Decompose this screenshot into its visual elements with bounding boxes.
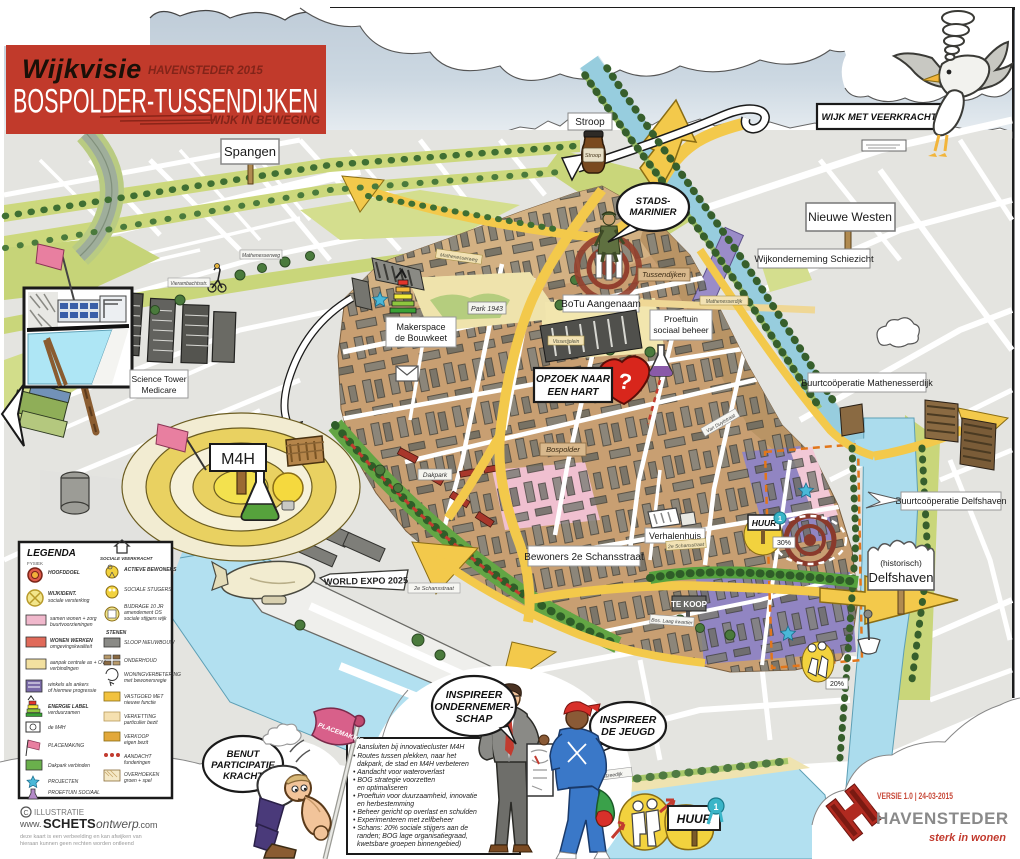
svg-text:Buurtcoöperatie Mathenesserdij: Buurtcoöperatie Mathenesserdijk — [801, 378, 933, 388]
svg-text:20%: 20% — [830, 681, 844, 688]
svg-text:www.: www. — [19, 819, 42, 829]
svg-text:met bewonersregie: met bewonersregie — [124, 678, 167, 684]
svg-text:en herbestemming: en herbestemming — [357, 801, 414, 808]
svg-text:ACTIEVE BEWONERS: ACTIEVE BEWONERS — [123, 567, 177, 573]
svg-text:Buurtcoöperatie Delfshaven: Buurtcoöperatie Delfshaven — [895, 496, 1006, 506]
svg-text:nieuwe functie: nieuwe functie — [124, 700, 156, 706]
svg-text:HOOFDDOEL: HOOFDDOEL — [48, 570, 80, 576]
svg-text:SLOOP NIEUWBOUW: SLOOP NIEUWBOUW — [124, 640, 176, 646]
svg-text:groen + spel: groen + spel — [124, 778, 153, 784]
svg-text:WIJK IN BEWEGING: WIJK IN BEWEGING — [209, 115, 320, 127]
svg-text:sociaal beheer: sociaal beheer — [653, 325, 708, 335]
svg-text:Wijkvisie: Wijkvisie — [22, 54, 142, 84]
svg-text:30%: 30% — [777, 540, 791, 547]
svg-text:• Aandacht voor wateroverlast: • Aandacht voor wateroverlast — [353, 769, 445, 776]
svg-text:C: C — [23, 810, 28, 817]
svg-text:PROJECTEN: PROJECTEN — [48, 779, 79, 785]
svg-text:Nieuwe Westen: Nieuwe Westen — [808, 210, 892, 224]
svg-text:sterk in wonen: sterk in wonen — [929, 832, 1006, 844]
svg-text:Spangen: Spangen — [224, 144, 276, 159]
svg-text:VERSIE 1.0 | 24-03-2015: VERSIE 1.0 | 24-03-2015 — [877, 791, 953, 801]
svg-text:Science Tower: Science Tower — [131, 374, 186, 384]
svg-text:DE JEUGD: DE JEUGD — [601, 726, 655, 738]
svg-text:en optimaliseren: en optimaliseren — [357, 785, 408, 792]
svg-text:Wijkonderneming Schiezicht: Wijkonderneming Schiezicht — [754, 254, 874, 265]
svg-text:sociale stijgers wijk: sociale stijgers wijk — [124, 616, 167, 622]
svg-text:Dakpark verbinden: Dakpark verbinden — [48, 763, 90, 769]
svg-text:2e Schansstraat: 2e Schansstraat — [413, 586, 454, 592]
svg-text:funderingen: funderingen — [124, 760, 151, 766]
svg-text:WIJKIDENT.: WIJKIDENT. — [48, 591, 77, 597]
svg-text:verbindingen: verbindingen — [50, 666, 79, 672]
svg-text:Visserijplein: Visserijplein — [553, 339, 580, 345]
svg-text:PLACEMAKING: PLACEMAKING — [48, 743, 84, 749]
svg-text:eigen bezit: eigen bezit — [124, 740, 149, 746]
svg-text:INSPIREER: INSPIREER — [600, 714, 657, 726]
svg-text:STENEN: STENEN — [106, 630, 127, 636]
svg-text:HAVENSTEDER 2015: HAVENSTEDER 2015 — [148, 65, 263, 77]
svg-text:Bewoners 2e Schansstraat: Bewoners 2e Schansstraat — [524, 552, 644, 563]
svg-text:buurtvoorzieningen: buurtvoorzieningen — [50, 622, 93, 628]
svg-text:.com: .com — [138, 820, 158, 830]
svg-text:sociale versterking: sociale versterking — [48, 598, 90, 604]
svg-text:PARTICIPATIE: PARTICIPATIE — [211, 760, 275, 771]
svg-text:SCHETS: SCHETS — [43, 816, 96, 831]
svg-text:• Experimenteren met zelfbehee: • Experimenteren met zelfbeheer — [353, 817, 454, 824]
svg-text:omgevingskwaliteit: omgevingskwaliteit — [50, 644, 93, 650]
svg-text:Stroop: Stroop — [575, 117, 605, 128]
svg-text:SOCIALE STIJGERS: SOCIALE STIJGERS — [124, 587, 172, 593]
svg-text:INSPIREER: INSPIREER — [446, 689, 503, 701]
svg-text:SOCIALE VEERKRACHT: SOCIALE VEERKRACHT — [100, 556, 154, 561]
svg-text:• Schans: 20% sociale stijgers: • Schans: 20% sociale stijgers aan de — [353, 825, 468, 832]
svg-text:WIJK MET VEERKRACHT: WIJK MET VEERKRACHT — [821, 112, 937, 123]
svg-text:de Bouwkeet: de Bouwkeet — [395, 333, 448, 343]
svg-text:kwetsbare groepen binnengebied: kwetsbare groepen binnengebied) — [357, 841, 461, 848]
svg-text:WORLD EXPO 2025: WORLD EXPO 2025 — [324, 575, 408, 586]
svg-text:ONDERHOUD: ONDERHOUD — [124, 658, 157, 664]
svg-text:BENUT: BENUT — [227, 749, 261, 760]
svg-text:ontwerp: ontwerp — [96, 817, 139, 831]
svg-text:• Aansluiten bij innovatieclus: • Aansluiten bij innovatiecluster M4H — [353, 744, 464, 751]
svg-text:verduurzamen: verduurzamen — [48, 710, 80, 716]
svg-text:dakpark, de stad en M4H verbe: dakpark, de stad en M4H verbeteren — [357, 761, 469, 768]
svg-text:BoTu Aangenaam: BoTu Aangenaam — [561, 299, 641, 310]
svg-text:FYSIEK: FYSIEK — [27, 561, 43, 566]
svg-text:Park 1943: Park 1943 — [471, 306, 503, 313]
svg-text:of hiermee progressie: of hiermee progressie — [48, 688, 97, 694]
svg-text:• BOG strategie voorzetten: • BOG strategie voorzetten — [353, 777, 435, 784]
svg-text:HUUR: HUUR — [677, 812, 712, 826]
svg-text:Stroop: Stroop — [585, 153, 601, 159]
svg-text:particulier bezit: particulier bezit — [123, 720, 158, 726]
svg-text:HUUR: HUUR — [752, 518, 777, 528]
svg-text:randen; BOG lage organisatiegr: randen; BOG lage organisatiegraad, — [357, 833, 468, 840]
svg-text:Medicare: Medicare — [142, 385, 177, 395]
svg-text:• Proeftuin voor duurzaamheid,: • Proeftuin voor duurzaamheid, innovatie — [353, 793, 477, 800]
svg-text:EEN HART: EEN HART — [548, 387, 600, 398]
svg-text:HAVENSTEDER: HAVENSTEDER — [876, 809, 1009, 828]
svg-text:Mathenesserdijk: Mathenesserdijk — [706, 299, 743, 305]
svg-text:deze kaart is een verbeelding: deze kaart is een verbeelding en kan afw… — [20, 834, 142, 840]
svg-text:TE KOOP: TE KOOP — [671, 600, 708, 609]
svg-text:Delfshaven: Delfshaven — [868, 570, 933, 585]
svg-text:Tussendijken: Tussendijken — [642, 270, 686, 279]
svg-text:Mathenesserweg: Mathenesserweg — [242, 253, 280, 259]
svg-text:• Beheer gericht op overlast e: • Beheer gericht op overlast en schulden — [353, 809, 477, 816]
svg-text:M4H: M4H — [221, 451, 255, 468]
svg-text:hieraan kunnen geen rechten wo: hieraan kunnen geen rechten worden ontle… — [20, 841, 134, 847]
svg-text:SCHAP: SCHAP — [456, 713, 494, 725]
svg-text:Proeftuin: Proeftuin — [664, 314, 698, 324]
svg-text:1: 1 — [713, 802, 718, 812]
svg-text:OPZOEK NAAR: OPZOEK NAAR — [536, 374, 611, 385]
svg-text:PROEFTUIN SOCIAAL: PROEFTUIN SOCIAAL — [48, 790, 100, 796]
svg-text:LEGENDA: LEGENDA — [27, 548, 76, 559]
svg-text:• Routes tussen plekken, naar: • Routes tussen plekken, naar het — [353, 753, 457, 760]
svg-text:de M4H: de M4H — [48, 725, 66, 731]
svg-text:STADS-: STADS- — [636, 196, 671, 207]
svg-text:Makerspace: Makerspace — [396, 322, 445, 332]
svg-text:MARINIER: MARINIER — [630, 207, 677, 218]
svg-text:(historisch): (historisch) — [880, 558, 922, 568]
svg-text:ONDERNEMER-: ONDERNEMER- — [434, 701, 514, 713]
svg-text:Vierambachtsstr.: Vierambachtsstr. — [170, 281, 207, 287]
svg-text:Dakpark: Dakpark — [423, 472, 448, 479]
svg-text:1: 1 — [778, 516, 782, 523]
svg-text:Bospolder: Bospolder — [546, 445, 580, 454]
